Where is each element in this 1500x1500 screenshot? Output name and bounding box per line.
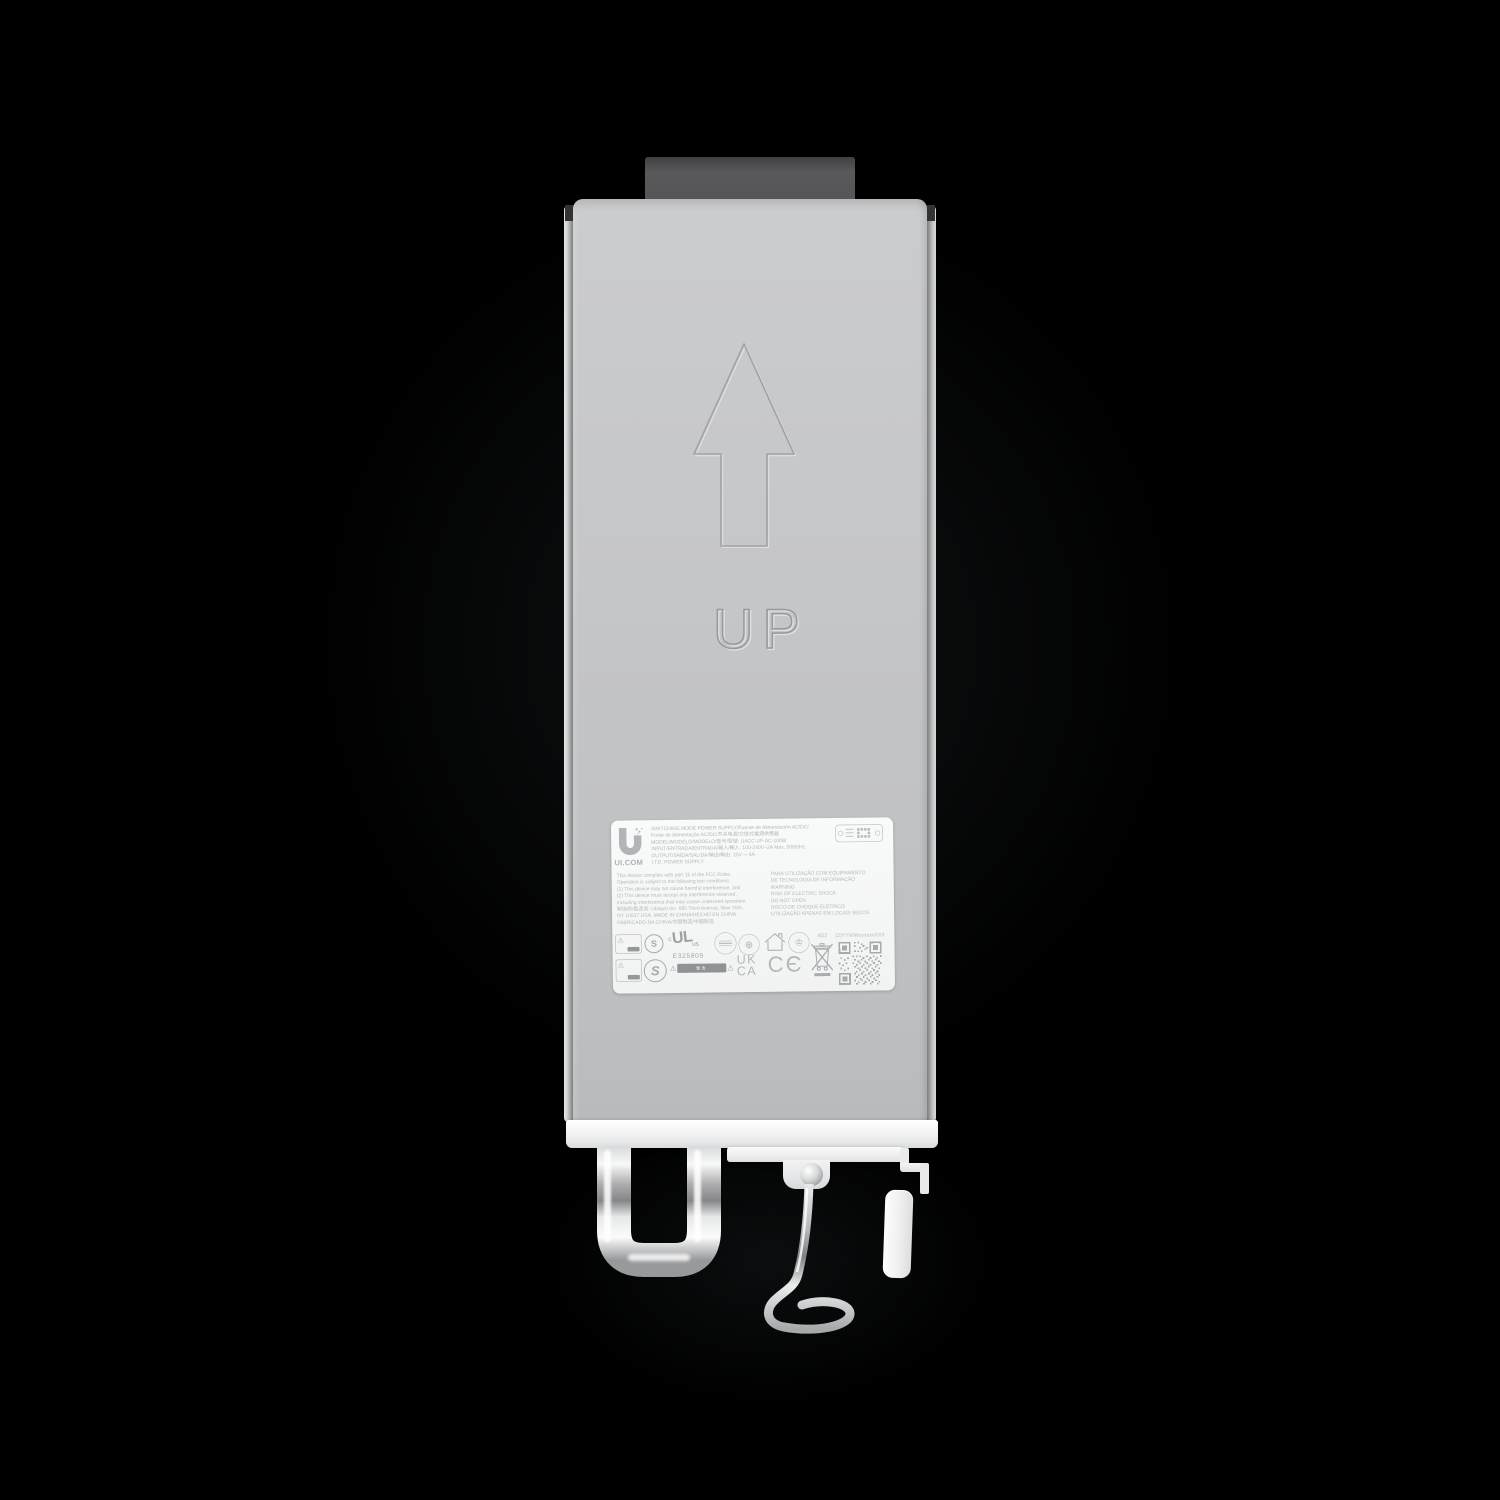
warning-block: PARA UTILIZAÇÃO COM EQUIPAMENTO DE TECNO… xyxy=(771,870,870,918)
label-spec-block: SWITCHING MODE POWER SUPPLY/Fuente de Al… xyxy=(651,824,809,866)
handle-highlight xyxy=(604,1150,611,1242)
warning-line: UTILIZAÇÃO APENAS EM LOCAIS SECOS xyxy=(771,910,869,918)
pse-mark-icon xyxy=(714,932,736,954)
right-rail-cap xyxy=(926,205,935,221)
up-text: UP xyxy=(713,597,809,660)
brand-text: UI.COM xyxy=(614,858,643,867)
bottom-cap xyxy=(566,1120,938,1148)
up-text-engraving: UP UP xyxy=(696,584,824,676)
safety-warning-mark-icon: ⚠ xyxy=(616,959,642,981)
s-safety-mark-icon: S xyxy=(644,934,663,953)
warning-strip-icon: ⚠ 警告 ⚠ xyxy=(670,963,734,973)
indoor-use-house-icon xyxy=(763,932,786,953)
top-connector-block xyxy=(645,157,855,204)
fcc-compliance-block: This device complies with part 15 of the… xyxy=(617,871,747,926)
handle-highlight xyxy=(628,1254,690,1261)
weee-bin-icon xyxy=(810,940,834,982)
hanging-hook xyxy=(752,1184,872,1340)
safety-warning-mark-icon: ⚠ xyxy=(615,934,641,953)
lever-arm xyxy=(920,1163,929,1194)
ul-file-number: E325809 xyxy=(673,952,704,960)
lever-paddle xyxy=(882,1190,913,1279)
ubiquiti-logo-icon xyxy=(616,826,644,857)
barcode-plate-icon xyxy=(835,824,883,843)
qr-code-icon xyxy=(838,941,882,985)
warning-strip-text: 警告 xyxy=(677,963,726,973)
product-photo-scene: UP UP UI.COM SWITCHING MODE POWER SUPPLY… xyxy=(0,0,1500,1500)
label-content: UI.COM SWITCHING MODE POWER SUPPLY/Fuent… xyxy=(611,817,895,993)
ukca-mark-icon: UK CA xyxy=(737,954,758,977)
s-safety-mark-icon: S xyxy=(644,959,667,982)
handle-highlight xyxy=(694,1150,701,1242)
handle-tube xyxy=(614,1146,704,1260)
ce-mark-icon: CЄ xyxy=(768,953,804,975)
arrow-highlight xyxy=(696,346,796,548)
chrome-handle xyxy=(596,1146,722,1284)
warning-line: DE TECNOLOGIA DE INFORMAÇÃO xyxy=(771,876,869,884)
assembly-code: A52 xyxy=(817,933,827,939)
hook-wire xyxy=(768,1184,850,1329)
pivot-pin xyxy=(800,1163,823,1186)
spec-line: I.T.E. POWER SUPPLY xyxy=(651,857,809,866)
serial-template: (2)YYWWxxxxxxXXX xyxy=(835,932,885,939)
cul-us-mark-icon: c UL us xyxy=(668,929,699,948)
up-arrow-engraving xyxy=(692,342,796,548)
crown-certification-mark-icon: ♔ xyxy=(788,932,809,953)
compliance-line: FABRICADO NA CHINA/中国制造/中國製造 xyxy=(617,918,747,926)
product-label: UI.COM SWITCHING MODE POWER SUPPLY/Fuent… xyxy=(611,817,895,993)
arrow-groove xyxy=(694,344,794,546)
